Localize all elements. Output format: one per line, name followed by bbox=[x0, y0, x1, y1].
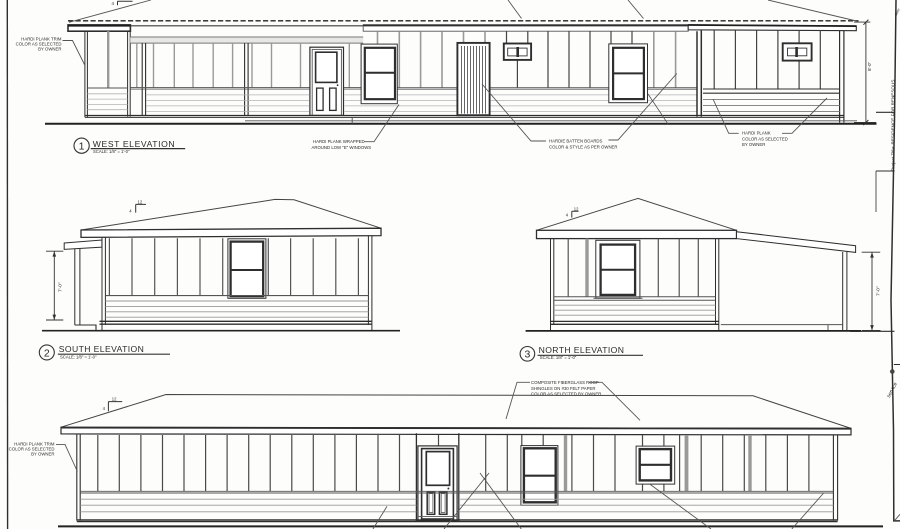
svg-text:1: 1 bbox=[79, 141, 85, 153]
svg-text:AROUND LOW "E" WINDOWS: AROUND LOW "E" WINDOWS bbox=[312, 145, 372, 150]
svg-text:COLOR AS SELECTED: COLOR AS SELECTED bbox=[742, 136, 788, 141]
svg-text:NORTH ELEVATION: NORTH ELEVATION bbox=[539, 345, 625, 355]
svg-text:COLOR AS SELECTED BY OWNER: COLOR AS SELECTED BY OWNER bbox=[531, 391, 601, 396]
svg-text:Project Title: RESIDENCE FOR: Project Title: RESIDENCE FOR RENESOUS bbox=[890, 80, 895, 171]
svg-text:2: 2 bbox=[44, 347, 50, 359]
svg-text:12: 12 bbox=[574, 206, 579, 211]
svg-text:BY OWNER: BY OWNER bbox=[31, 452, 54, 457]
svg-text:12: 12 bbox=[138, 200, 143, 205]
svg-text:SCALE: 1/8" = 1'-0": SCALE: 1/8" = 1'-0" bbox=[60, 354, 97, 359]
svg-text:COLOR & STYLE AS PER OWNER: COLOR & STYLE AS PER OWNER bbox=[549, 144, 618, 149]
svg-text:COMPOSITE FIBERGLASS ROOF: COMPOSITE FIBERGLASS ROOF bbox=[531, 380, 599, 385]
svg-text:HARDI PLANK WRAPPED: HARDI PLANK WRAPPED bbox=[313, 139, 365, 144]
svg-text:12: 12 bbox=[112, 396, 117, 401]
svg-text:WEST ELEVATION: WEST ELEVATION bbox=[93, 139, 175, 149]
svg-text:HARDIE BATTEN BOARDS: HARDIE BATTEN BOARDS bbox=[549, 138, 603, 143]
svg-text:SOUTH ELEVATION: SOUTH ELEVATION bbox=[59, 344, 144, 354]
svg-text:8'-0": 8'-0" bbox=[867, 61, 872, 71]
svg-text:SHINGLES ON #30 FELT PAPER: SHINGLES ON #30 FELT PAPER bbox=[531, 386, 595, 391]
svg-text:7'-0": 7'-0" bbox=[58, 282, 64, 292]
svg-text:3: 3 bbox=[524, 349, 530, 361]
svg-text:BY OWNER: BY OWNER bbox=[38, 46, 61, 51]
svg-text:SCALE: 1/8" = 1'-0": SCALE: 1/8" = 1'-0" bbox=[540, 355, 577, 360]
svg-text:HARDI PLANK: HARDI PLANK bbox=[742, 131, 771, 136]
svg-text:BY OWNER: BY OWNER bbox=[742, 142, 765, 147]
svg-text:SCALE: 1/8" = 1'-0": SCALE: 1/8" = 1'-0" bbox=[93, 149, 130, 154]
svg-text:7'-0": 7'-0" bbox=[875, 286, 881, 296]
